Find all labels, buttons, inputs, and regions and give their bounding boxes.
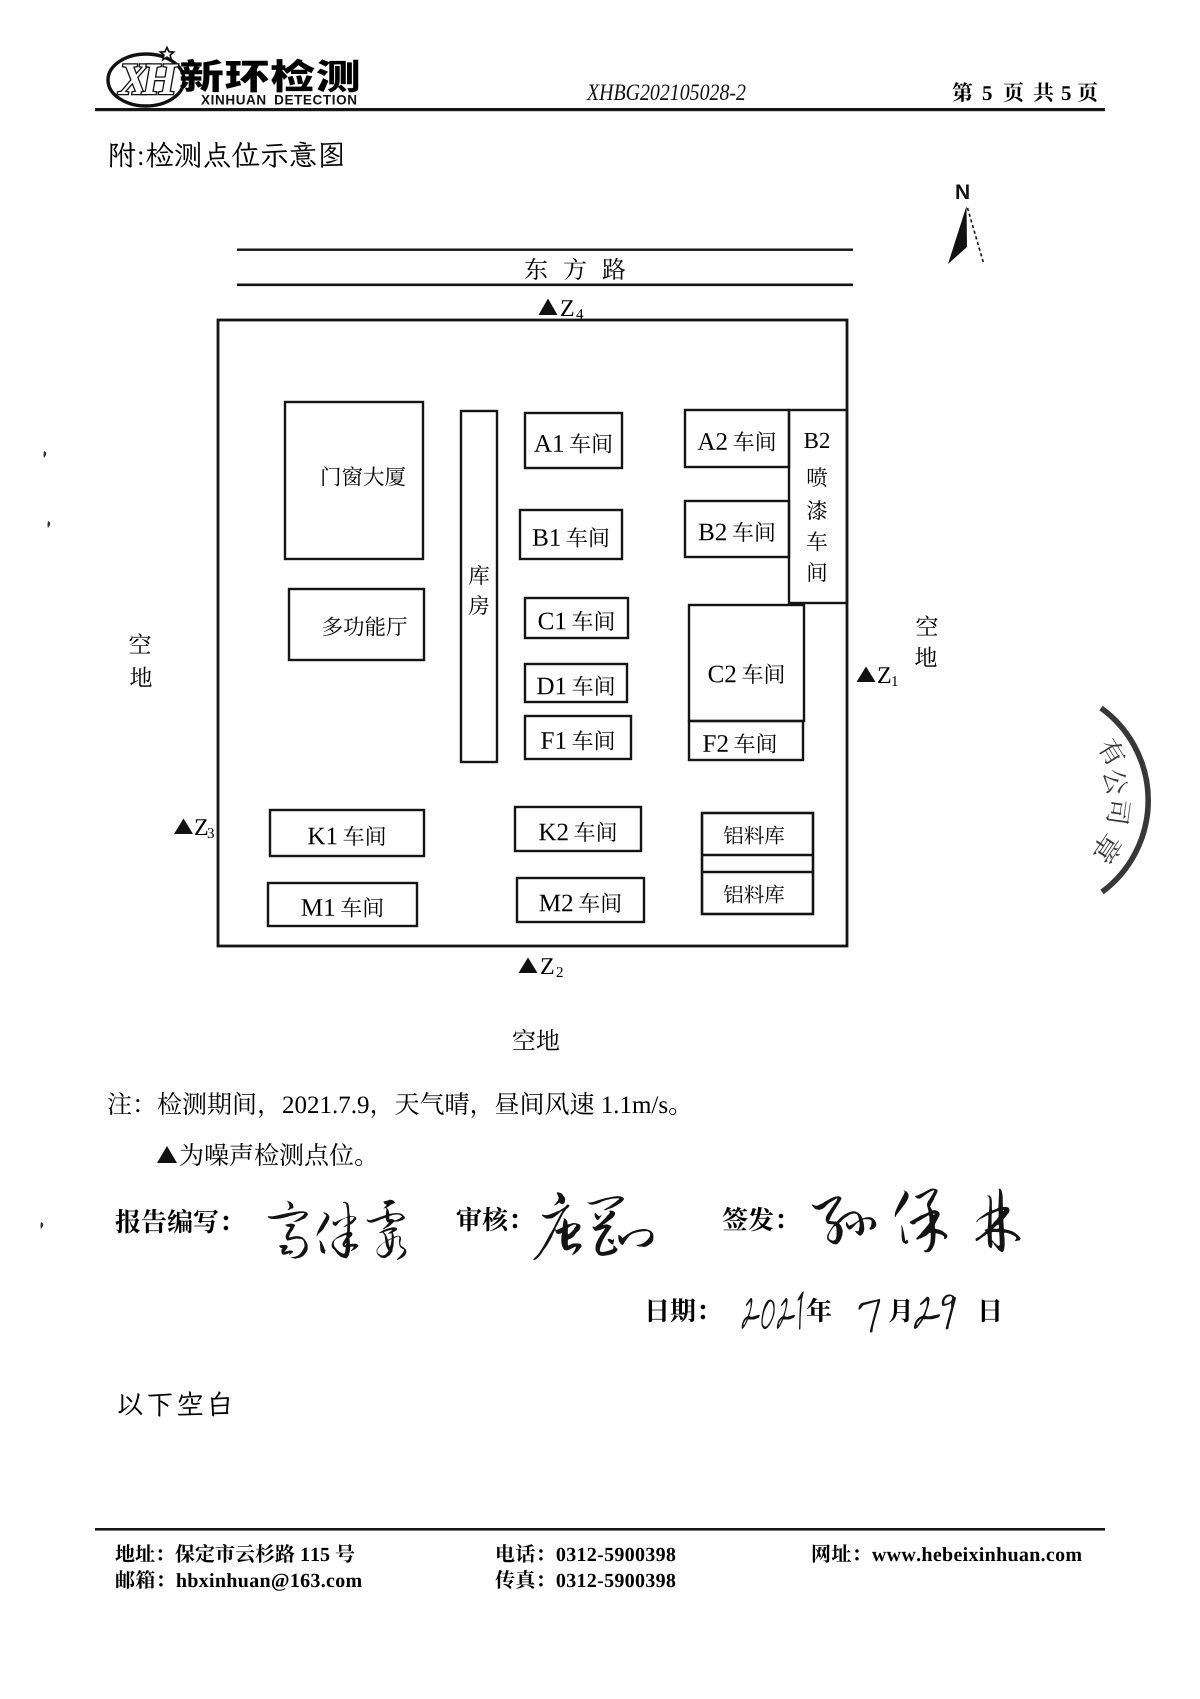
svg-text:XINHUAN DETECTION: XINHUAN DETECTION (201, 93, 357, 108)
svg-text:N: N (955, 181, 970, 204)
svg-text:XHBG202105028-2: XHBG202105028-2 (586, 80, 746, 105)
